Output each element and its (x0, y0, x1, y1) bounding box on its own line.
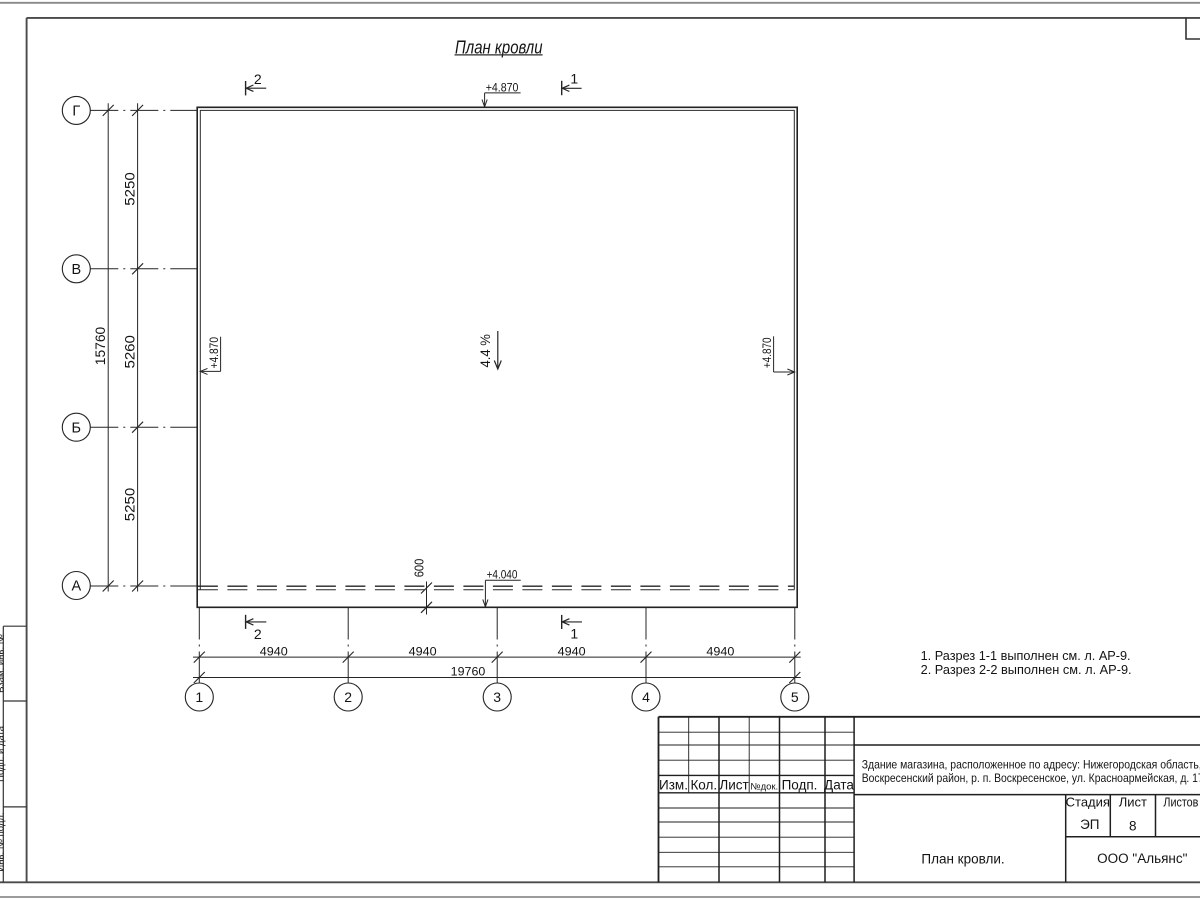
svg-text:4940: 4940 (558, 645, 586, 659)
svg-text:Б: Б (72, 420, 82, 436)
svg-text:15760: 15760 (92, 327, 108, 366)
svg-text:Инв. № подл.: Инв. № подл. (0, 812, 6, 871)
svg-text:№док.: №док. (750, 781, 778, 792)
svg-text:Стадия: Стадия (1066, 795, 1110, 810)
svg-text:4.4 %: 4.4 % (478, 334, 493, 368)
svg-text:Изм.: Изм. (659, 777, 688, 792)
svg-text:1. Разрез 1-1 выполнен см. л.: 1. Разрез 1-1 выполнен см. л. АР-9. (921, 648, 1131, 663)
svg-text:2: 2 (254, 626, 262, 642)
svg-text:5260: 5260 (122, 335, 138, 369)
svg-text:План кровли.: План кровли. (921, 851, 1004, 866)
svg-text:Кол.: Кол. (690, 777, 717, 792)
svg-text:ООО "Альянс": ООО "Альянс" (1097, 851, 1187, 866)
svg-text:1: 1 (570, 71, 578, 87)
svg-text:Дата: Дата (824, 777, 854, 792)
svg-text:+4.040: +4.040 (487, 569, 518, 581)
svg-text:4940: 4940 (706, 645, 734, 659)
svg-text:+4.870: +4.870 (762, 337, 774, 368)
svg-text:Листов: Листов (1163, 795, 1198, 810)
svg-text:4940: 4940 (260, 645, 288, 659)
svg-text:5250: 5250 (122, 488, 138, 522)
svg-text:5: 5 (791, 689, 799, 705)
svg-text:Г: Г (72, 104, 80, 120)
svg-text:2. Разрез 2-2 выполнен см. л.: 2. Разрез 2-2 выполнен см. л. АР-9. (921, 662, 1132, 677)
svg-text:4: 4 (642, 689, 650, 705)
svg-text:600: 600 (412, 559, 427, 578)
svg-text:2: 2 (344, 689, 352, 705)
svg-text:Взам. инв. №: Взам. инв. № (0, 634, 6, 693)
svg-text:19760: 19760 (451, 664, 486, 678)
svg-text:Подп. и дата: Подп. и дата (0, 725, 6, 782)
svg-text:В: В (71, 262, 81, 278)
svg-text:2: 2 (254, 71, 262, 87)
svg-text:Подп.: Подп. (782, 777, 818, 792)
svg-text:Лист: Лист (1119, 795, 1147, 810)
svg-text:5250: 5250 (122, 172, 138, 206)
svg-text:8: 8 (1129, 819, 1137, 834)
svg-text:3: 3 (493, 689, 501, 705)
svg-text:1: 1 (195, 689, 203, 705)
svg-text:ЭП: ЭП (1080, 817, 1099, 832)
svg-text:+4.870: +4.870 (209, 337, 221, 369)
svg-text:4940: 4940 (409, 645, 437, 659)
svg-text:А: А (71, 579, 81, 595)
svg-text:Здание магазина, расположенное: Здание магазина, расположенное по адресу… (862, 758, 1200, 772)
svg-text:Воскресенский район, р. п. Вос: Воскресенский район, р. п. Воскресенское… (862, 771, 1200, 785)
svg-text:Лист: Лист (719, 777, 748, 792)
svg-text:1: 1 (570, 626, 578, 642)
svg-text:План кровли: План кровли (455, 36, 543, 57)
